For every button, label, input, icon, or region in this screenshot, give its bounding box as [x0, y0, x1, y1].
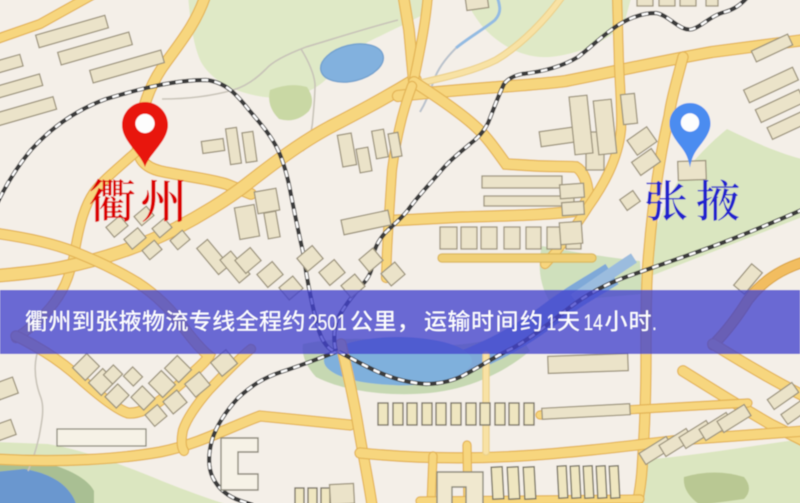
svg-text:1: 1	[547, 311, 557, 335]
svg-text:.: .	[652, 311, 657, 335]
svg-text:14: 14	[584, 311, 603, 335]
svg-text:2501: 2501	[308, 311, 347, 335]
